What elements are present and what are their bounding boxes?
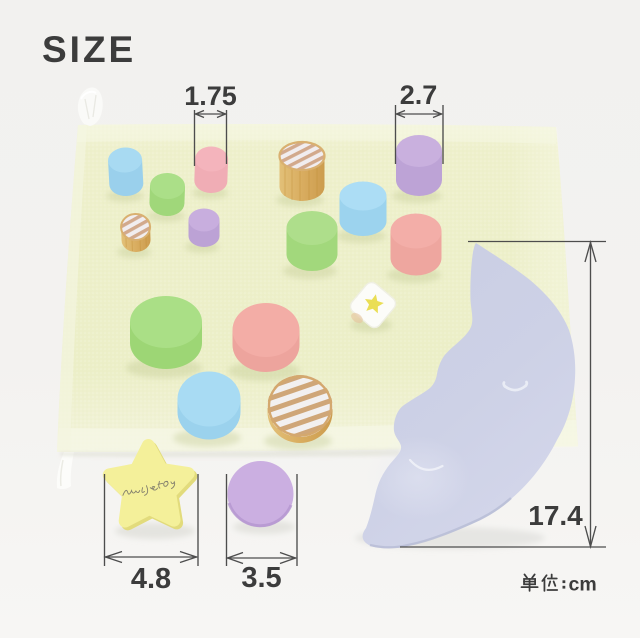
svg-text:1.75: 1.75 [184, 81, 237, 111]
svg-text:2.7: 2.7 [400, 80, 438, 110]
svg-text:17.4: 17.4 [528, 500, 583, 531]
svg-text:cm: cm [569, 574, 597, 596]
svg-text:3.5: 3.5 [241, 562, 281, 594]
svg-text:4.8: 4.8 [131, 563, 171, 595]
svg-text:SIZE: SIZE [42, 29, 136, 70]
